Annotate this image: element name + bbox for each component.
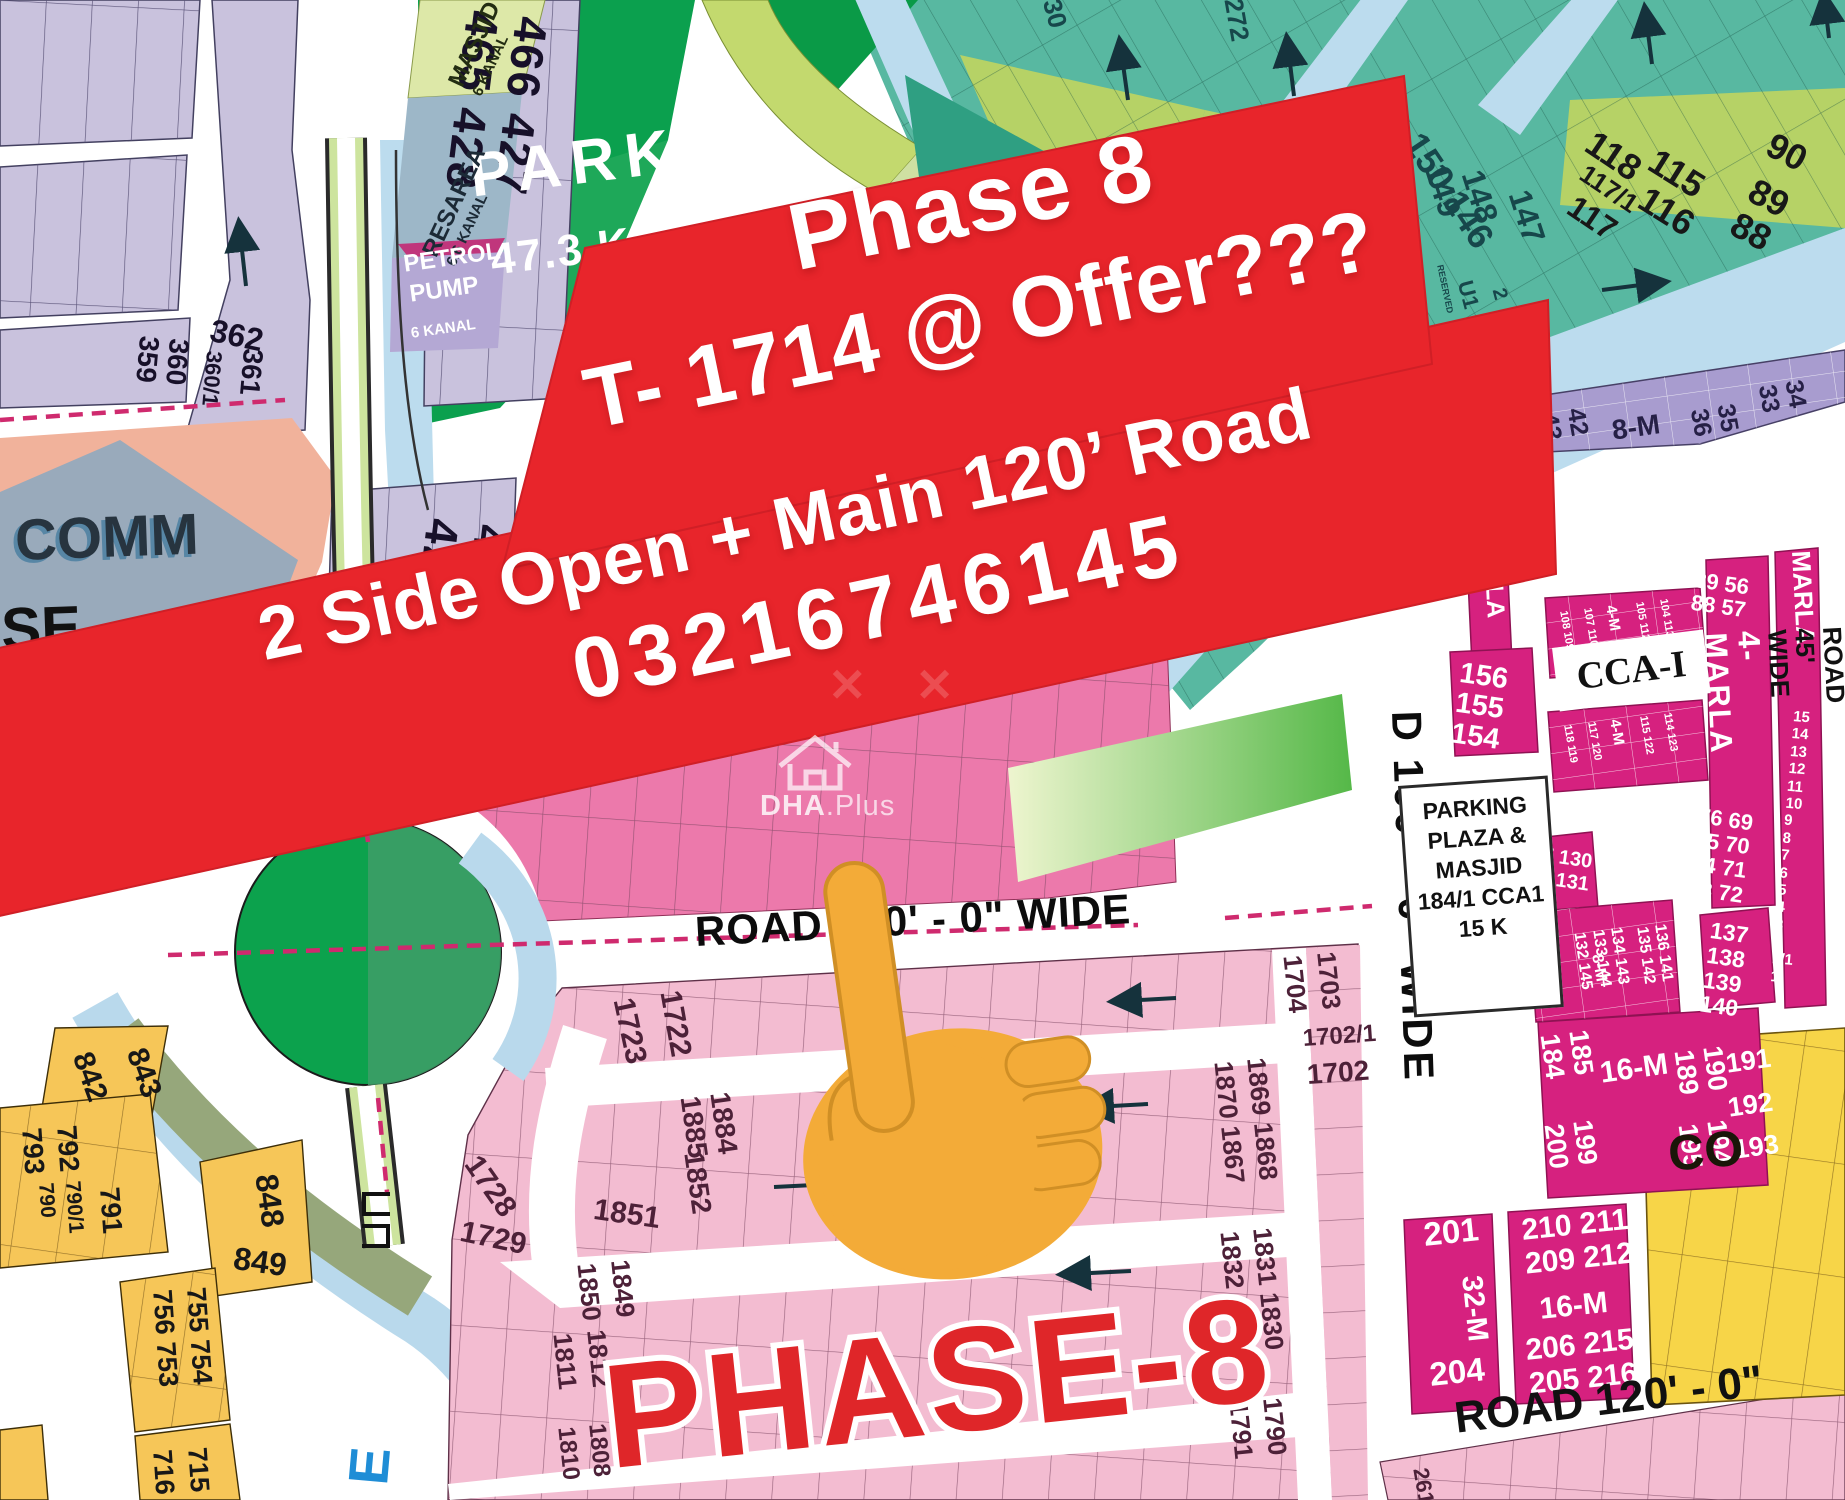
pointing-finger-emoji (750, 830, 1110, 1330)
watermark: DHA.Plus (702, 726, 912, 841)
watermark-pattern: ✕ ✕ (828, 658, 972, 712)
watermark-brand-bold: DHA (760, 790, 826, 822)
map-screenshot: 466 427 465 428 426 375 425 376 362 361 … (0, 0, 1845, 1500)
watermark-brand-rest: .Plus (826, 790, 895, 822)
